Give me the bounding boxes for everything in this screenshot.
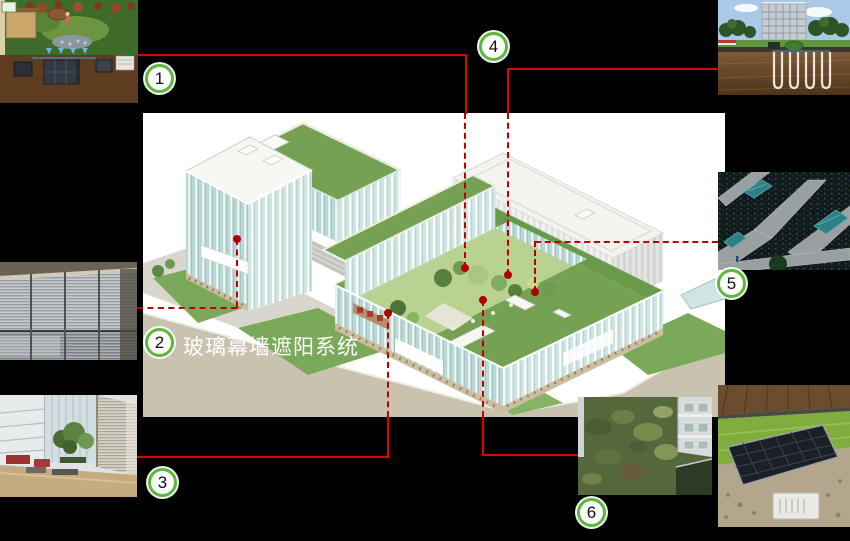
callout-badge-1: 1 [145, 64, 174, 93]
connector-3-vertical [387, 417, 389, 458]
caption-glass-curtain-wall-shading: 玻璃幕墙遮阳系统 [183, 331, 359, 361]
thumb-atrium-interior-photo [0, 395, 137, 497]
callout-label-4: 4 [489, 38, 498, 55]
connector-3-dashed [387, 313, 389, 417]
connector-5-horizontal [535, 241, 718, 243]
callout-label-1: 1 [155, 70, 164, 87]
thumb-green-roof-photo [578, 397, 712, 495]
callout-badge-4: 4 [479, 32, 508, 61]
connector-6-dashed [482, 300, 484, 417]
thumb-ground-source-heat-pump-diagram [718, 0, 850, 95]
connector-3-horizontal [137, 456, 388, 458]
anchor-dot-2 [233, 235, 241, 243]
thumb-rainwater-garden-diagram [0, 0, 138, 103]
thumb-wetland-ponds-photo [718, 172, 850, 270]
callout-label-6: 6 [587, 504, 596, 521]
campus-rendering-image [143, 113, 725, 417]
connector-1-horizontal [138, 54, 467, 56]
thumb-window-blinds-photo [0, 262, 137, 360]
connector-1-dashed [464, 113, 466, 268]
anchor-dot-4 [504, 271, 512, 279]
slide-canvas: 1 2 3 4 5 6 玻璃幕墙遮阳系统 [0, 0, 850, 541]
callout-badge-2: 2 [145, 328, 174, 357]
callout-badge-6: 6 [577, 498, 606, 527]
connector-4-vertical [507, 68, 509, 114]
connector-6-vertical [482, 417, 484, 456]
connector-2-vertical [236, 239, 238, 308]
callout-label-3: 3 [158, 474, 167, 491]
anchor-dot-5 [531, 288, 539, 296]
callout-label-2: 2 [155, 334, 164, 351]
callout-badge-5: 5 [717, 269, 746, 298]
anchor-dot-3 [384, 309, 392, 317]
callout-label-5: 5 [727, 275, 736, 292]
connector-1-vertical [465, 54, 467, 114]
callout-badge-3: 3 [148, 468, 177, 497]
connector-4-horizontal [508, 68, 718, 70]
connector-6-horizontal [482, 454, 578, 456]
anchor-dot-1 [461, 264, 469, 272]
connector-4-dashed [507, 113, 509, 275]
thumb-solar-panel-roof-photo [718, 385, 850, 527]
anchor-dot-6 [479, 296, 487, 304]
connector-2-horizontal [137, 307, 237, 309]
connector-5-vertical [534, 241, 536, 292]
